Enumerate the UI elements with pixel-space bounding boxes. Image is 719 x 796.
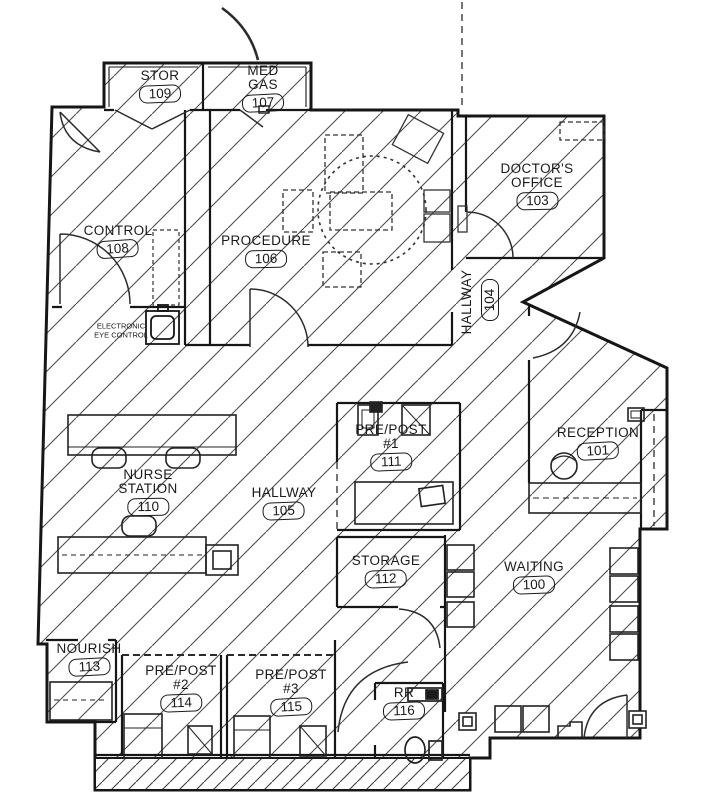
room-label-rr: RR 116 bbox=[383, 686, 425, 720]
room-name: PRE/POST bbox=[255, 668, 326, 682]
rr-sink bbox=[426, 690, 438, 699]
room-name: STOR bbox=[139, 69, 181, 83]
wall-fixture bbox=[370, 402, 382, 412]
room-label-med-gas: MED GAS 107 bbox=[242, 64, 284, 112]
room-number-badge: 106 bbox=[245, 250, 287, 269]
room-number-badge: 112 bbox=[365, 569, 408, 588]
room-number-badge: 109 bbox=[139, 84, 182, 103]
room-label-hallway-105: HALLWAY 105 bbox=[252, 486, 317, 520]
room-label-hallway-104-number: 104 bbox=[479, 279, 499, 321]
label-electronic-eye-control: ELECTRONIC EYE CONTROL bbox=[94, 323, 148, 340]
room-name: MED bbox=[242, 64, 284, 78]
annotation-text: EYE CONTROL bbox=[94, 331, 148, 340]
room-name: #2 bbox=[145, 678, 216, 692]
room-name: RR bbox=[383, 686, 425, 700]
column bbox=[629, 711, 646, 728]
floor-plan: STOR 109 MED GAS 107 DOCTOR'S OFFICE 103… bbox=[0, 0, 719, 796]
room-number-badge: 114 bbox=[160, 693, 203, 712]
room-name: OFFICE bbox=[500, 176, 573, 190]
room-number-badge: 113 bbox=[68, 657, 111, 677]
room-label-reception: RECEPTION 101 bbox=[557, 426, 639, 460]
room-number-badge: 110 bbox=[127, 498, 169, 517]
room-label-nourish: NOURISH 113 bbox=[56, 642, 121, 676]
room-name: GAS bbox=[242, 78, 284, 92]
room-name: RECEPTION bbox=[557, 426, 639, 440]
room-number-badge: 101 bbox=[577, 441, 620, 461]
room-label-hallway-104-name: HALLWAY bbox=[460, 270, 474, 335]
floor-plan-drawing bbox=[0, 0, 719, 796]
room-label-pre-post-2: PRE/POST #2 114 bbox=[145, 664, 216, 712]
room-name: PRE/POST bbox=[355, 423, 426, 437]
room-name: CONTROL bbox=[84, 224, 153, 238]
room-number-badge: 104 bbox=[481, 279, 499, 321]
column bbox=[459, 713, 476, 730]
room-name: NURSE bbox=[118, 468, 177, 482]
room-label-nurse-station: NURSE STATION 110 bbox=[118, 468, 177, 516]
room-label-stor: STOR 109 bbox=[139, 69, 181, 103]
room-number-badge: 116 bbox=[383, 701, 426, 720]
room-name: STORAGE bbox=[352, 554, 421, 568]
room-label-storage: STORAGE 112 bbox=[352, 554, 421, 588]
room-label-procedure: PROCEDURE 106 bbox=[221, 234, 311, 268]
room-label-pre-post-3: PRE/POST #3 115 bbox=[255, 668, 326, 716]
room-name: WAITING bbox=[504, 560, 564, 574]
room-name: STATION bbox=[118, 482, 177, 496]
room-number-badge: 107 bbox=[242, 93, 285, 113]
room-name: HALLWAY bbox=[252, 486, 317, 500]
room-name: #3 bbox=[255, 682, 326, 696]
room-name: NOURISH bbox=[56, 642, 121, 656]
room-name: HALLWAY bbox=[460, 270, 474, 335]
room-name: #1 bbox=[355, 437, 426, 451]
room-label-control: CONTROL 108 bbox=[84, 224, 153, 258]
room-name: DOCTOR'S bbox=[500, 162, 573, 176]
room-number-badge: 115 bbox=[270, 697, 313, 717]
room-number-badge: 111 bbox=[370, 452, 413, 471]
room-label-doctors-office: DOCTOR'S OFFICE 103 bbox=[500, 162, 573, 210]
room-label-pre-post-1: PRE/POST #1 111 bbox=[355, 423, 426, 471]
entry-door-leaf-top bbox=[222, 8, 258, 60]
room-number-badge: 105 bbox=[263, 501, 306, 520]
room-label-waiting: WAITING 100 bbox=[504, 560, 564, 594]
room-number-badge: 103 bbox=[516, 192, 558, 211]
room-number-badge: 108 bbox=[96, 239, 139, 260]
room-number-badge: 100 bbox=[513, 575, 556, 594]
room-name: PRE/POST bbox=[145, 664, 216, 678]
room-name: PROCEDURE bbox=[221, 234, 311, 248]
